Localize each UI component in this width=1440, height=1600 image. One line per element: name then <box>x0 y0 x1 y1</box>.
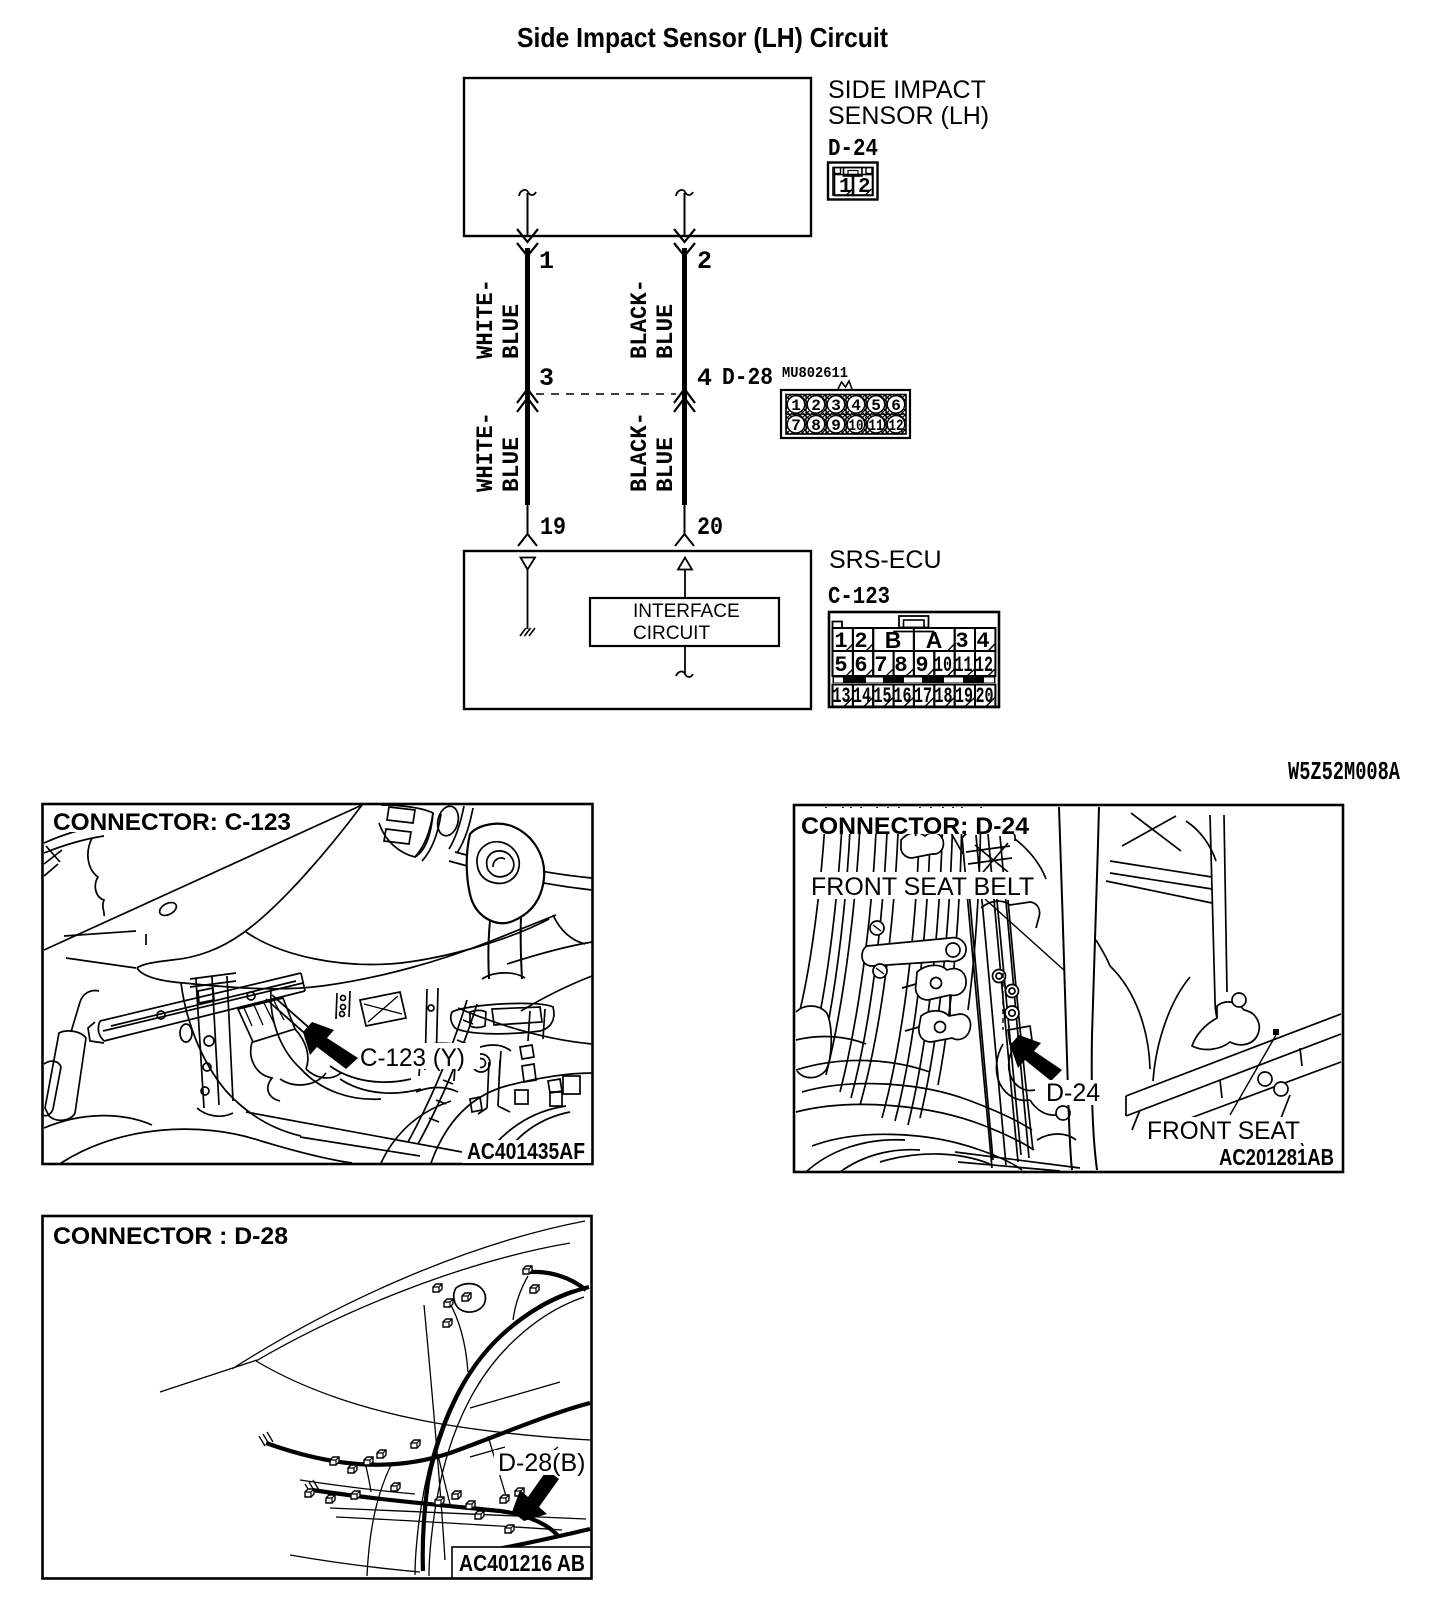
svg-text:9: 9 <box>915 653 928 678</box>
svg-text:BLUE: BLUE <box>653 304 679 359</box>
svg-text:BLUE: BLUE <box>499 304 525 359</box>
svg-text:10: 10 <box>934 653 952 678</box>
svg-text:20: 20 <box>976 684 994 709</box>
svg-text:12: 12 <box>975 653 993 678</box>
svg-text:11: 11 <box>955 653 973 678</box>
svg-text:1: 1 <box>834 629 847 654</box>
svg-text:1: 1 <box>791 397 801 415</box>
svg-text:AC201281AB: AC201281AB <box>1219 1144 1334 1170</box>
svg-text:BLUE: BLUE <box>653 437 679 492</box>
svg-text:12: 12 <box>889 417 904 435</box>
svg-text:WHITE-: WHITE- <box>473 279 499 359</box>
svg-text:6: 6 <box>891 397 901 415</box>
svg-text:BLUE: BLUE <box>499 437 525 492</box>
svg-text:D-24: D-24 <box>828 136 878 163</box>
svg-text:CONNECTOR: C-123: CONNECTOR: C-123 <box>53 809 291 836</box>
svg-text:1: 1 <box>539 247 554 276</box>
svg-text:17: 17 <box>914 684 932 709</box>
svg-text:SENSOR (LH): SENSOR (LH) <box>828 102 989 130</box>
svg-text:3: 3 <box>831 397 841 415</box>
svg-text:SIDE IMPACT: SIDE IMPACT <box>828 76 986 104</box>
svg-text:AC401216 AB: AC401216 AB <box>459 1550 585 1576</box>
svg-text:13: 13 <box>833 684 851 709</box>
svg-text:D-28: D-28 <box>722 365 773 392</box>
svg-text:11: 11 <box>869 417 884 435</box>
svg-text:3: 3 <box>955 629 968 654</box>
svg-text:4: 4 <box>851 397 861 415</box>
svg-text:9: 9 <box>831 417 841 435</box>
svg-text:15: 15 <box>874 684 892 709</box>
svg-text:4: 4 <box>976 629 989 654</box>
svg-text:8: 8 <box>811 417 821 435</box>
svg-text:7: 7 <box>874 653 887 678</box>
svg-text:4: 4 <box>697 364 712 393</box>
svg-text:C-123 (Y): C-123 (Y) <box>360 1044 465 1072</box>
svg-text:FRONT SEAT: FRONT SEAT <box>1147 1117 1300 1145</box>
svg-text:2: 2 <box>854 629 867 654</box>
svg-text:BLACK-: BLACK- <box>627 412 653 492</box>
svg-text:W5Z52M008A: W5Z52M008A <box>1288 757 1400 787</box>
svg-text:20: 20 <box>697 513 723 542</box>
svg-text:D-24: D-24 <box>1046 1079 1100 1107</box>
svg-text:MU802611: MU802611 <box>782 365 848 382</box>
svg-text:2: 2 <box>697 247 712 276</box>
svg-text:A: A <box>926 627 943 653</box>
svg-text:16: 16 <box>894 684 912 709</box>
svg-text:19: 19 <box>955 684 973 709</box>
svg-text:FRONT SEAT BELT: FRONT SEAT BELT <box>811 873 1034 901</box>
svg-text:5: 5 <box>834 653 847 678</box>
svg-text:18: 18 <box>935 684 953 709</box>
svg-text:AC401435AF: AC401435AF <box>467 1138 585 1164</box>
svg-text:14: 14 <box>853 684 871 709</box>
svg-text:Side Impact Sensor (LH) Circui: Side Impact Sensor (LH) Circuit <box>517 22 888 53</box>
svg-text:7: 7 <box>791 417 801 435</box>
svg-text:CONNECTOR: D-24: CONNECTOR: D-24 <box>801 813 1030 840</box>
svg-text:5: 5 <box>871 397 881 415</box>
svg-text:INTERFACE: INTERFACE <box>633 601 740 622</box>
svg-text:C-123: C-123 <box>828 584 890 611</box>
svg-text:8: 8 <box>894 653 907 678</box>
svg-text:1: 1 <box>839 176 852 199</box>
svg-text:6: 6 <box>854 653 867 678</box>
svg-text:CONNECTOR : D-28: CONNECTOR : D-28 <box>53 1223 288 1250</box>
svg-text:3: 3 <box>539 364 554 393</box>
svg-text:BLACK-: BLACK- <box>627 279 653 359</box>
svg-text:2: 2 <box>858 176 871 199</box>
svg-text:WHITE-: WHITE- <box>473 412 499 492</box>
svg-text:19: 19 <box>540 513 566 542</box>
svg-text:2: 2 <box>811 397 821 415</box>
svg-text:SRS-ECU: SRS-ECU <box>829 546 942 574</box>
svg-text:10: 10 <box>849 417 864 435</box>
svg-text:D-28(B): D-28(B) <box>498 1449 586 1477</box>
svg-text:B: B <box>885 627 902 653</box>
svg-text:CIRCUIT: CIRCUIT <box>633 623 710 644</box>
